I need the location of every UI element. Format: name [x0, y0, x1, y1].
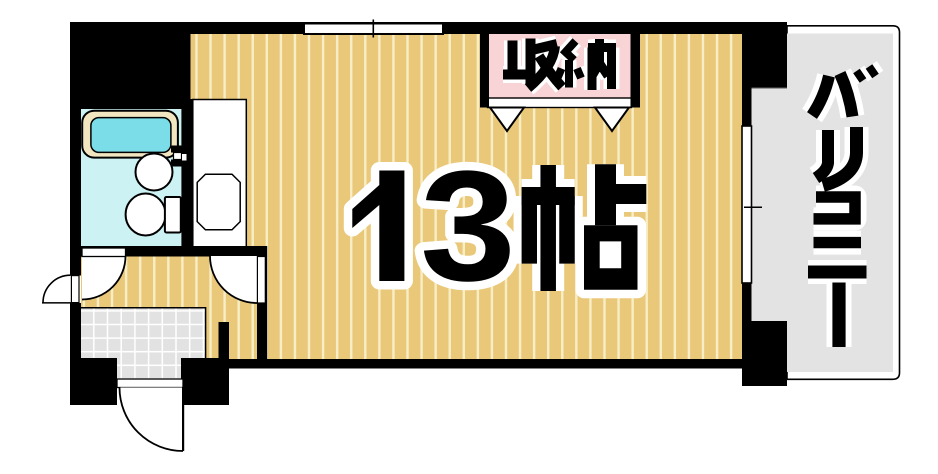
svg-text:3: 3 — [420, 139, 516, 314]
